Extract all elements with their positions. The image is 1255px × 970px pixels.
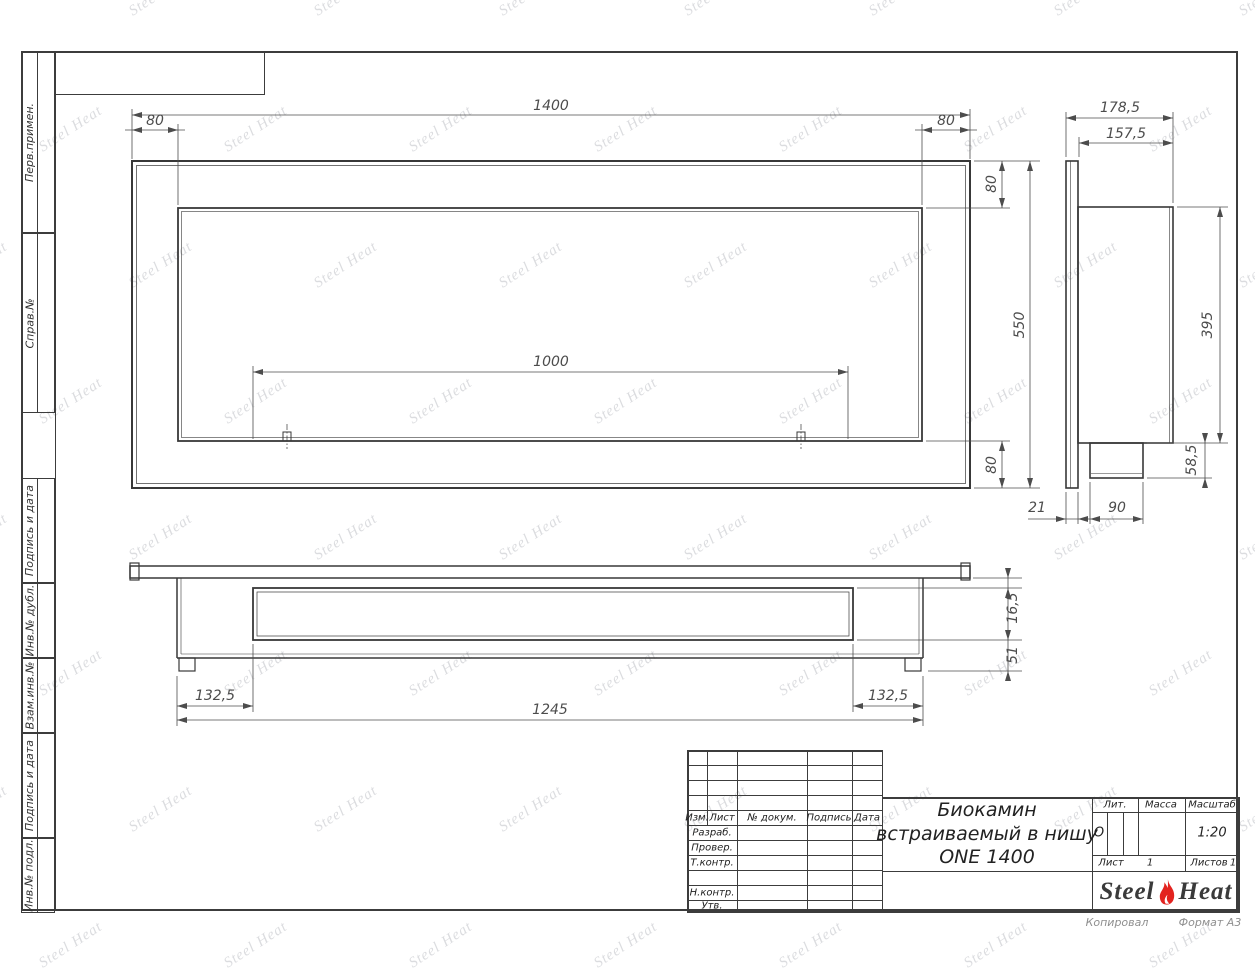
- rev-col-izm: Изм.: [685, 813, 709, 824]
- margin-cell-inv-podl: Инв.№ подл.: [21, 838, 38, 913]
- list-value: 1: [1147, 858, 1153, 869]
- dimension-arrows: [132, 112, 1223, 723]
- row-prover: Провер.: [691, 843, 733, 854]
- list-label: Лист: [1098, 858, 1123, 869]
- row-razrab: Разраб.: [692, 828, 731, 839]
- dim-front-bottom-band: 80: [984, 456, 1000, 474]
- watermark-text: Steel Heat: [221, 919, 291, 970]
- listov-value: 1: [1230, 858, 1236, 869]
- massa-label: Масса: [1145, 800, 1177, 811]
- footer-format: Формат А3: [1179, 916, 1242, 929]
- margin-blank: [37, 733, 55, 838]
- dim-side-depth-body: 157,5: [1106, 126, 1146, 142]
- foot-left: [179, 658, 195, 671]
- scale-value: 1:20: [1197, 826, 1226, 841]
- doc-title-line3: ONE 1400: [939, 846, 1035, 868]
- drawing-views: 1400 80 80 1000 80 550 80 178,5 157,5 39…: [0, 0, 1255, 745]
- dim-top-back-depth: 51: [1005, 646, 1021, 664]
- margin-label: Подпись и дата: [23, 740, 36, 831]
- lit-value: О: [1094, 826, 1104, 841]
- watermark-text: Steel Heat: [776, 919, 846, 970]
- logo-heat-text: Heat: [1179, 878, 1233, 906]
- side-view: [1066, 161, 1173, 488]
- dim-front-offset-right: 80: [937, 113, 955, 129]
- steelheat-logo: Steel Heat: [1092, 871, 1240, 913]
- dim-top-body-width: 1245: [532, 702, 568, 718]
- doc-title-line2: встраиваемый в нишу: [876, 823, 1098, 845]
- masshtab-label: Масштаб: [1188, 800, 1236, 811]
- margin-label: Инв.№ подл.: [23, 839, 36, 911]
- row-tkontr: Т.контр.: [690, 858, 733, 869]
- foot-right: [905, 658, 921, 671]
- drawing-sheet: Steel HeatSteel HeatSteel HeatSteel Heat…: [0, 0, 1255, 970]
- dim-top-flange-gap: 16,5: [1005, 592, 1021, 623]
- dim-side-flange-thickness: 21: [1028, 500, 1046, 516]
- lit-label: Лит.: [1103, 800, 1126, 811]
- rev-col-list: Лист: [709, 813, 734, 824]
- row-nkontr: Н.контр.: [690, 888, 735, 899]
- rev-col-data: Дата: [854, 813, 880, 824]
- flame-icon: [1158, 879, 1176, 905]
- dim-side-box-height: 58,5: [1184, 444, 1200, 475]
- doc-title-line1: Биокамин: [937, 799, 1036, 821]
- dim-front-burner: 1000: [533, 354, 569, 370]
- front-view: [132, 161, 970, 488]
- top-view: [130, 563, 970, 671]
- watermark-text: Steel Heat: [961, 919, 1031, 970]
- dim-front-height: 550: [1012, 312, 1028, 339]
- rev-col-podpis: Подпись: [807, 813, 852, 824]
- dim-top-right-offset: 132,5: [868, 688, 908, 704]
- watermark-text: Steel Heat: [0, 783, 11, 837]
- watermark-text: Steel Heat: [36, 919, 106, 970]
- burner-opening: [253, 588, 853, 640]
- dim-side-box-depth: 90: [1108, 500, 1126, 516]
- margin-blank: [37, 838, 55, 913]
- rev-col-docnum: № докум.: [747, 813, 796, 824]
- watermark-text: Steel Heat: [591, 919, 661, 970]
- dim-side-depth-total: 178,5: [1100, 100, 1140, 116]
- dim-front-width: 1400: [533, 98, 569, 114]
- dim-front-top-band: 80: [984, 175, 1000, 193]
- row-utv: Утв.: [702, 901, 723, 912]
- listov-label: Листов: [1190, 858, 1227, 869]
- dimension-lines: [125, 109, 1228, 726]
- watermark-text: Steel Heat: [406, 919, 476, 970]
- dim-front-offset-left: 80: [146, 113, 164, 129]
- dim-top-left-offset: 132,5: [195, 688, 235, 704]
- logo-steel-text: Steel: [1100, 878, 1155, 906]
- title-block: Изм. Лист № докум. Подпись Дата Разраб. …: [687, 750, 1240, 913]
- dim-side-body-height: 395: [1200, 312, 1216, 339]
- margin-cell-podpis-data-2: Подпись и дата: [21, 733, 38, 838]
- dimension-labels: 1400 80 80 1000 80 550 80 178,5 157,5 39…: [146, 98, 1216, 718]
- footer-kopiroval: Копировал: [1086, 916, 1149, 929]
